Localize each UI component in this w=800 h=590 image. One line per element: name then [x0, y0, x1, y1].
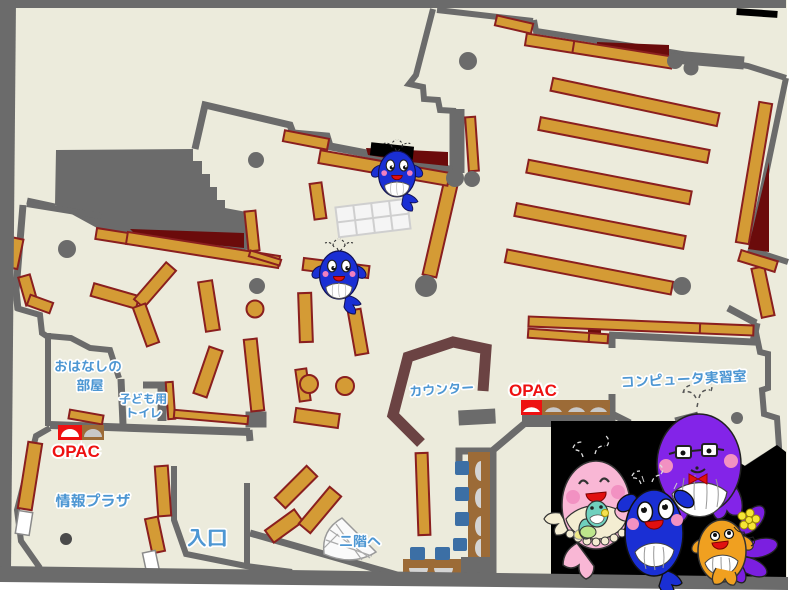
svg-text:OPAC: OPAC [509, 381, 557, 400]
svg-text:OPAC: OPAC [52, 442, 100, 461]
